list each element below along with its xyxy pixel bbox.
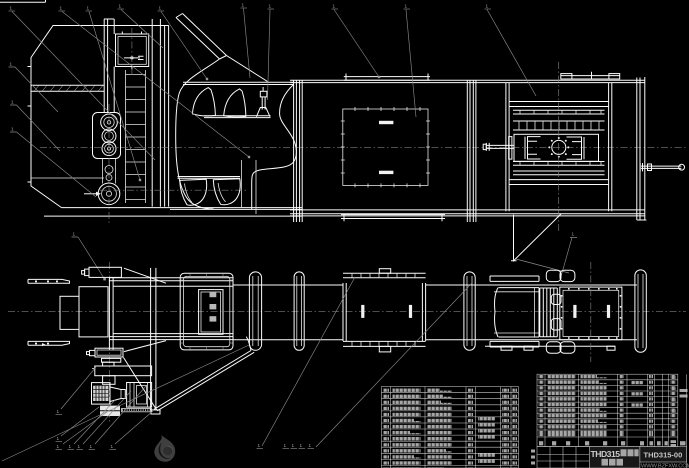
svg-text:1: 1 xyxy=(405,4,408,9)
svg-text:1: 1 xyxy=(57,409,60,414)
svg-text:1: 1 xyxy=(258,443,261,448)
svg-text:1: 1 xyxy=(73,232,76,237)
svg-text:1: 1 xyxy=(69,444,72,449)
svg-text:1: 1 xyxy=(242,3,245,8)
svg-text:1: 1 xyxy=(10,6,13,11)
svg-text:WWW.BZFXW.COM: WWW.BZFXW.COM xyxy=(641,463,689,468)
svg-text:1: 1 xyxy=(60,6,63,11)
svg-text:1: 1 xyxy=(333,4,336,9)
svg-text:1: 1 xyxy=(57,436,60,441)
svg-text:1: 1 xyxy=(159,6,162,11)
svg-text:1: 1 xyxy=(111,444,114,449)
svg-text:1: 1 xyxy=(10,62,13,67)
svg-text:1: 1 xyxy=(292,443,295,448)
svg-text:1: 1 xyxy=(87,6,90,11)
svg-text:1: 1 xyxy=(300,443,303,448)
svg-text:1: 1 xyxy=(269,4,272,9)
svg-text:1: 1 xyxy=(119,4,122,9)
svg-text:1: 1 xyxy=(57,444,60,449)
svg-text:1: 1 xyxy=(90,444,93,449)
svg-text:1: 1 xyxy=(11,127,14,132)
svg-text:1: 1 xyxy=(309,443,312,448)
svg-text:THD315-00: THD315-00 xyxy=(644,451,683,460)
svg-text:THD315: THD315 xyxy=(591,449,621,459)
svg-text:1: 1 xyxy=(78,444,81,449)
svg-text:1: 1 xyxy=(11,100,14,105)
svg-text:1: 1 xyxy=(572,232,575,237)
svg-text:1: 1 xyxy=(284,443,287,448)
svg-text:1: 1 xyxy=(486,4,489,9)
